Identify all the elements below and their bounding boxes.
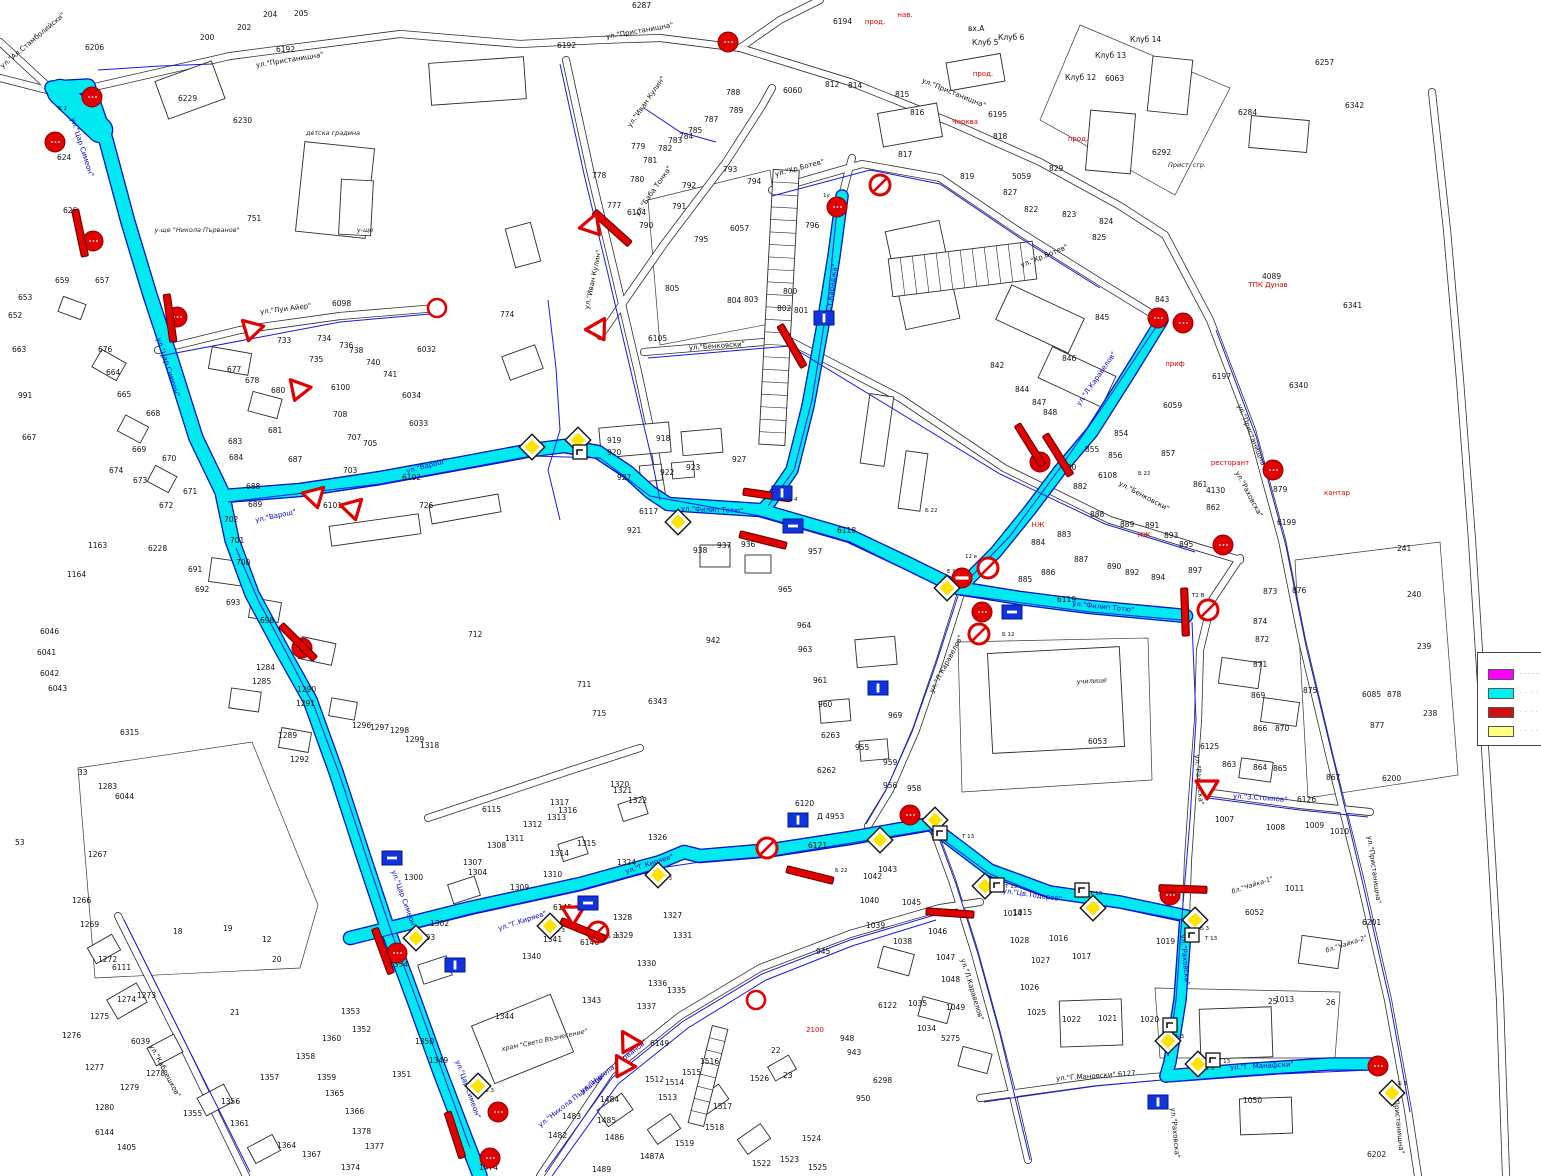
street-name-label: ул."Баба Тонка" <box>633 164 673 217</box>
parcel-number: 1266 <box>72 896 91 905</box>
parcel-number: 800 <box>783 287 798 296</box>
parcel-number: 1330 <box>637 959 656 968</box>
circle-solid-sign <box>82 87 102 107</box>
parcel-number: 1522 <box>752 1159 771 1168</box>
ring-sign <box>747 991 765 1009</box>
street-name-label: ул."Ал.Стамболийски" <box>0 11 67 70</box>
parcel-number: 707 <box>347 433 362 442</box>
parcel-number: 1020 <box>1140 1015 1159 1024</box>
parcel-number: 885 <box>1018 575 1033 584</box>
building <box>996 285 1085 353</box>
parcel-number: 1039 <box>866 921 885 930</box>
parcel-number: 6292 <box>1152 148 1171 157</box>
parcel-number: 803 <box>744 295 759 304</box>
parcel-number: 6202 <box>1367 1150 1386 1159</box>
parcel-number: 681 <box>268 426 283 435</box>
parcel-number: 1008 <box>1266 823 1285 832</box>
parcel-number: 1340 <box>522 952 541 961</box>
parcel-number: 791 <box>672 202 687 211</box>
parcel-number: 1300 <box>404 873 423 882</box>
blue-sign-sign <box>445 958 465 972</box>
circle-solid-sign <box>1148 308 1168 328</box>
parcel-number: 921 <box>627 526 642 535</box>
parcel-number: 663 <box>12 345 27 354</box>
parcel-number: 1050 <box>1243 1096 1262 1105</box>
parcel-number: 1526 <box>750 1074 769 1083</box>
red-annotation: приф <box>1165 360 1185 368</box>
blue-sign-sign <box>783 519 803 533</box>
parcel-number: 1011 <box>1285 884 1304 893</box>
street-labels-layer: ул."Ал.Стамболийски"ул."Пристанищна"ул."… <box>0 11 1406 1158</box>
parcel-number: 705 <box>363 439 378 448</box>
legend-swatch <box>1488 707 1514 718</box>
legend-label: · · · · · <box>1520 690 1541 696</box>
parcel-number: 1512 <box>645 1075 664 1084</box>
parcel-number: 6052 <box>1245 908 1264 917</box>
parcel-number: 702 <box>224 515 239 524</box>
legend-label: ·········· <box>1520 671 1541 677</box>
parcel-number: 819 <box>960 172 975 181</box>
parcel-number: 1027 <box>1031 956 1050 965</box>
highlighted-street <box>224 446 564 496</box>
legend-item: · · · · · <box>1488 707 1541 717</box>
parcel-number: 711 <box>577 680 592 689</box>
parcel-number: 741 <box>383 370 398 379</box>
parcel-number: 1310 <box>543 870 562 879</box>
parcel-number: 740 <box>366 358 381 367</box>
parcel-number: 26 <box>1326 998 1336 1007</box>
parcel-number: 920 <box>607 448 622 457</box>
parcel-number: 6315 <box>120 728 139 737</box>
parcel-number: 961 <box>813 676 828 685</box>
parcel-number: 948 <box>840 1034 855 1043</box>
parcel-number: 6046 <box>40 627 59 636</box>
parcel-number: 1524 <box>802 1134 821 1143</box>
parcel-number: 1321 <box>613 786 632 795</box>
parcel-number: 845 <box>1095 313 1110 322</box>
parcel-number: 1307 <box>463 858 482 867</box>
parcel-number: 6039 <box>131 1037 150 1046</box>
parcel-number: 918 <box>656 434 671 443</box>
parcel-number: Клуб 13 <box>1095 51 1126 60</box>
parcel-number: 684 <box>229 453 244 462</box>
parcel-number: 1045 <box>902 898 921 907</box>
parcel-number: 6102 <box>402 473 421 482</box>
parcel-number: 822 <box>1024 205 1039 214</box>
red-annotation: прод. <box>973 70 993 78</box>
parcel-number: 672 <box>159 501 174 510</box>
parcel-number: 735 <box>309 355 324 364</box>
parcel-number: 1484 <box>600 1095 619 1104</box>
parcel-number: 956 <box>883 781 898 790</box>
parcel-number: 1335 <box>667 986 686 995</box>
parcel-number: 678 <box>245 376 260 385</box>
ring-diag-sign <box>757 838 777 858</box>
parcel-number: 1302 <box>430 919 449 928</box>
building <box>681 428 723 455</box>
parcel-number: 927 <box>732 455 747 464</box>
parcel-number: 893 <box>1164 531 1179 540</box>
red-annotation: ТПК Дунав <box>1247 281 1287 289</box>
bar-sign <box>926 908 974 919</box>
parcel-number: 1009 <box>1305 821 1324 830</box>
parcel-number: 817 <box>898 150 913 159</box>
parcel-number: 204 <box>263 10 278 19</box>
road-fill <box>428 748 640 818</box>
parcel-number: 1487А <box>640 1152 665 1161</box>
circle-solid-sign <box>1368 1056 1388 1076</box>
parcel-number: 1047 <box>936 953 955 962</box>
parcel-number: 1021 <box>1098 1014 1117 1023</box>
parcel-number: Клуб 14 <box>1130 35 1161 44</box>
parcel-number: 5059 <box>1012 172 1031 181</box>
parcel-number: 883 <box>1057 530 1072 539</box>
parcel-number: 698 <box>260 616 275 625</box>
parcel-number: 886 <box>1041 568 1056 577</box>
sign-code-label: Б 22 <box>1138 471 1151 477</box>
parcel-number: 6060 <box>783 86 802 95</box>
parcel-number: 1297 <box>370 723 389 732</box>
parcel-number: 6098 <box>332 299 351 308</box>
parcel-number: 6341 <box>1343 301 1362 310</box>
parcel-number: 6126 <box>1297 795 1316 804</box>
building <box>247 1134 280 1163</box>
sign-code-label: Б 2 <box>58 106 67 112</box>
parcel-number: 1516 <box>700 1057 719 1066</box>
circle-solid-sign <box>1213 535 1233 555</box>
map-canvas[interactable]: 2006206202204205619261926229623075162462… <box>0 0 1541 1176</box>
parcel-number: 1331 <box>673 931 692 940</box>
building <box>502 345 543 380</box>
legend-title: · · <box>1488 659 1541 665</box>
circle-solid-sign <box>1173 313 1193 333</box>
parcel-number: 854 <box>1114 429 1129 438</box>
parcel-number: 891 <box>1145 521 1160 530</box>
legend-swatch <box>1488 669 1514 680</box>
parcel-number: 1291 <box>296 699 315 708</box>
parcel-number: 6100 <box>331 383 350 392</box>
parcel-number: 889 <box>1120 520 1135 529</box>
parcel-number: 241 <box>1397 544 1412 553</box>
parcel-number: 1517 <box>713 1102 732 1111</box>
parcel-number: 22 <box>771 1046 781 1055</box>
parcel-number: 1358 <box>296 1052 315 1061</box>
parcel-number: 703 <box>343 466 358 475</box>
bar-sign <box>1181 588 1190 636</box>
sign-code-label: Т2 В <box>1191 593 1205 599</box>
parcel-number: 6117 <box>639 507 658 516</box>
parcel-number: 887 <box>1074 555 1089 564</box>
parcel-number: 21 <box>230 1008 240 1017</box>
parcel-number: 842 <box>990 361 1005 370</box>
utility-line <box>548 300 560 520</box>
landmark-label: Прист. сгр. <box>1168 161 1206 169</box>
parcel-number: 1038 <box>893 937 912 946</box>
parcel-number: 824 <box>1099 217 1114 226</box>
parcel-number: 6044 <box>115 792 134 801</box>
parcel-number: 738 <box>349 346 364 355</box>
landmark-label: бл."Чайка-1" <box>1231 875 1275 896</box>
parcel-number: 882 <box>1073 482 1088 491</box>
legend-item: · · · · · <box>1488 726 1541 736</box>
parcel-number: 805 <box>665 284 680 293</box>
parcel-number: 687 <box>288 455 303 464</box>
parcel-number: 6111 <box>112 963 131 972</box>
parcel-number: 1273 <box>137 991 156 1000</box>
blue-sign-sign <box>1148 1095 1168 1109</box>
parcel-number: 4130 <box>1206 486 1225 495</box>
parcel-number: 680 <box>271 386 286 395</box>
parcel-number: 1359 <box>317 1073 336 1082</box>
utility-line <box>124 920 250 1172</box>
parcel-number: 818 <box>993 132 1008 141</box>
legend-swatch <box>1488 688 1514 699</box>
parcel-number: 205 <box>294 9 309 18</box>
parcel-number: 877 <box>1370 721 1385 730</box>
circle-solid-sign <box>972 602 992 622</box>
parcel-number: 790 <box>639 221 654 230</box>
building <box>737 1124 770 1155</box>
parcel-number: 1327 <box>663 911 682 920</box>
parcel-number: 1326 <box>648 833 667 842</box>
parcel-number: 1315 <box>577 839 596 848</box>
parcel-number: 1164 <box>67 570 86 579</box>
map-legend: · · ··········· · · · ·· · · · ·· · · · … <box>1477 652 1541 746</box>
square-sign <box>1075 883 1089 897</box>
blue-sign-sign <box>814 311 834 325</box>
parcel-number: 1317 <box>550 798 569 807</box>
parcel-number: 796 <box>805 221 820 230</box>
parcel-number: 959 <box>883 758 898 767</box>
parcel-number: 1357 <box>260 1073 279 1082</box>
parcel-number: 792 <box>682 181 697 190</box>
parcel-number: 1366 <box>345 1107 364 1116</box>
red-annotation: прод. <box>1068 135 1088 143</box>
parcel-number: 6118 <box>837 526 856 535</box>
parcel-number: 1034 <box>917 1024 936 1033</box>
parcel-number: 1360 <box>322 1034 341 1043</box>
blue-sign-sign <box>1002 605 1022 619</box>
parcel-number: 6115 <box>482 805 501 814</box>
parcel-number: 865 <box>1273 764 1288 773</box>
parcel-number: 794 <box>747 177 762 186</box>
building <box>117 415 148 443</box>
parcel-number: 700 <box>236 558 251 567</box>
parcel-number: 778 <box>592 171 607 180</box>
parcel-number: 6121 <box>808 841 827 850</box>
parcel-number: 991 <box>18 391 33 400</box>
parcel-number: 6032 <box>417 345 436 354</box>
parcel-number: 1367 <box>302 1150 321 1159</box>
square-sign <box>933 826 947 840</box>
parcel-number: 1285 <box>252 677 271 686</box>
parcel-number: 5275 <box>941 1034 960 1043</box>
building <box>229 688 261 712</box>
parcel-number: 1013 <box>1275 995 1294 1004</box>
parcel-number: 6343 <box>648 697 667 706</box>
parcel-number: 1311 <box>505 834 524 843</box>
parcel-number: 1019 <box>1156 937 1175 946</box>
parcel-number: 1518 <box>705 1123 724 1132</box>
square-sign <box>990 878 1004 892</box>
parcel-number: 873 <box>1263 587 1278 596</box>
parcel-number: 1040 <box>860 896 879 905</box>
parcel-number: 240 <box>1407 590 1422 599</box>
parcel-number: 789 <box>729 106 744 115</box>
parcel-number: 964 <box>797 621 812 630</box>
parcel-number: 1298 <box>390 726 409 735</box>
parcel-number: 777 <box>607 201 622 210</box>
parcel-number: 6059 <box>1163 401 1182 410</box>
parcel-number: 855 <box>1085 445 1100 454</box>
parcel-number: 677 <box>227 365 242 374</box>
parcel-number: 1355 <box>183 1109 202 1118</box>
utility-line <box>545 914 938 1172</box>
parcel-number: 801 <box>794 306 809 315</box>
sign-code-label: Б 3 <box>1398 1081 1408 1087</box>
sign-code-label: Т 13 <box>961 834 975 840</box>
parcel-number: 894 <box>1151 573 1166 582</box>
parcel-number: 1513 <box>658 1093 677 1102</box>
parcel-number: 871 <box>1253 660 1268 669</box>
building <box>58 296 86 319</box>
parcel-number: 938 <box>693 546 708 555</box>
red-annotation: кантар <box>1324 489 1350 497</box>
parcel-number: 1010 <box>1330 827 1349 836</box>
landmark-label: у-ще <box>356 226 373 234</box>
parcel-number: 950 <box>856 1094 871 1103</box>
ring-diag-sign <box>1198 600 1218 620</box>
parcel-number: 787 <box>704 115 719 124</box>
parcel-number: 960 <box>818 700 833 709</box>
parcel-number: 692 <box>195 585 210 594</box>
parcel-number: 1015 <box>1013 908 1032 917</box>
parcel-number: 6063 <box>1105 74 1124 83</box>
parcel-number: 922 <box>660 468 675 477</box>
parcel-number: 869 <box>1251 691 1266 700</box>
parcel-number: 6287 <box>632 1 651 10</box>
parcel-number: 689 <box>248 500 263 509</box>
parcel-number: 1046 <box>928 927 947 936</box>
parcel-number: 657 <box>95 276 110 285</box>
parcel-number: 673 <box>133 476 148 485</box>
parcel-number: 6262 <box>817 766 836 775</box>
parcel-number: 1308 <box>487 841 506 850</box>
parcel-number: 895 <box>1179 540 1194 549</box>
street-name-label: ул."Иван Кулин" <box>626 75 667 129</box>
parcel-number: 788 <box>726 88 741 97</box>
parcel-number: 1374 <box>341 1163 360 1172</box>
parcel-number: 1280 <box>95 1103 114 1112</box>
street-name-label: ул."Иван Кулин" <box>583 249 603 310</box>
street-name-label: ул."Бенковски" <box>1117 480 1170 513</box>
parcel-number: 867 <box>1326 773 1341 782</box>
parcel-number: 1349 <box>429 1056 448 1065</box>
map-viewport[interactable]: 2006206202204205619261926229623075162462… <box>0 0 1541 1176</box>
parcel-number: 1042 <box>863 872 882 881</box>
parcel-number: 815 <box>895 90 910 99</box>
parcel-number: 733 <box>277 336 292 345</box>
parcel-number: 1283 <box>98 782 117 791</box>
parcel-number: 782 <box>658 144 673 153</box>
parcel-number: 804 <box>727 296 742 305</box>
parcel-number: 1304 <box>468 868 487 877</box>
parcel-number: Клуб 12 <box>1065 73 1096 82</box>
parcel-number: 969 <box>888 711 903 720</box>
building <box>248 391 282 418</box>
parcel-number: 1343 <box>582 996 601 1005</box>
bar-sign <box>71 209 88 257</box>
parcel-number: 18 <box>173 927 183 936</box>
parcel-number: 1026 <box>1020 983 1039 992</box>
parcel-number: 624 <box>57 153 72 162</box>
parcel-number: 870 <box>1275 724 1290 733</box>
square-sign <box>1206 1053 1220 1067</box>
parcel-number: 856 <box>1108 451 1123 460</box>
parcel-number: 6192 <box>557 41 576 50</box>
red-annotation: 2100 <box>806 1026 824 1034</box>
parcel-number: 802 <box>777 304 792 313</box>
building <box>745 555 771 573</box>
parcel-number: 691 <box>188 565 203 574</box>
parcel-number: 1523 <box>780 1155 799 1164</box>
parcel-number: 945 <box>816 947 831 956</box>
parcel-number: 6085 <box>1362 690 1381 699</box>
parcel-number: 238 <box>1423 709 1438 718</box>
parcel-number: 6144 <box>95 1128 114 1137</box>
parcel-number: 897 <box>1188 566 1203 575</box>
parcel-number: 6229 <box>178 94 197 103</box>
building <box>429 494 501 524</box>
parcel-number: 1322 <box>628 796 647 805</box>
parcel-number: 1351 <box>392 1070 411 1079</box>
parcel-number: 1269 <box>80 920 99 929</box>
parcel-number: 1336 <box>648 979 667 988</box>
road-fill <box>1432 92 1506 1176</box>
circle-solid-sign <box>718 32 738 52</box>
legend-label: · · · · · <box>1520 728 1541 734</box>
parcel-number: 1356 <box>221 1097 240 1106</box>
parcel-number: 1290 <box>297 685 316 694</box>
building <box>1085 110 1135 174</box>
parcel-number: 6340 <box>1289 381 1308 390</box>
parcel-number: 1486 <box>605 1133 624 1142</box>
parcel-number: 963 <box>798 645 813 654</box>
parcel-number: 878 <box>1387 690 1402 699</box>
circle-solid-sign <box>45 132 65 152</box>
parcel-number: 726 <box>419 501 434 510</box>
parcel-number: 1361 <box>230 1119 249 1128</box>
parcel-number: 1365 <box>325 1089 344 1098</box>
square-sign <box>573 445 587 459</box>
blue-sign-sign <box>772 486 792 500</box>
parcel-number: 1016 <box>1049 934 1068 943</box>
parcel-number: 1316 <box>558 806 577 815</box>
blue-sign-sign <box>788 813 808 827</box>
sign-code-label: Б 22 <box>925 508 938 514</box>
legend-label: · · · · · <box>1520 709 1541 715</box>
parcel-number: 1276 <box>62 1031 81 1040</box>
sign-code-label: Б 12 <box>1002 632 1015 638</box>
parcel-number: 1272 <box>98 955 117 964</box>
parcel-number: 1485 <box>597 1116 616 1125</box>
parcel-number: 239 <box>1417 642 1432 651</box>
parcel-number: 781 <box>643 156 658 165</box>
parcel-number: 6201 <box>1362 918 1381 927</box>
parcel-number: 664 <box>106 368 121 377</box>
parcel-number: 844 <box>1015 385 1030 394</box>
parcel-number: 812 <box>825 80 840 89</box>
